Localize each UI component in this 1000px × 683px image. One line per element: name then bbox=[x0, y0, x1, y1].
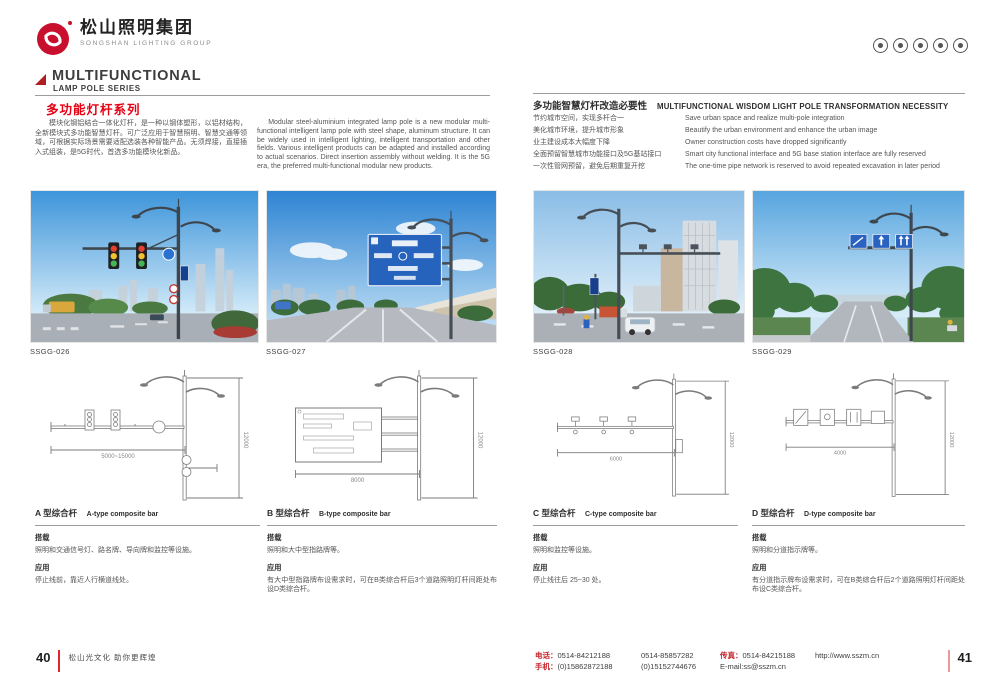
product-title: B 型综合杆 B-type composite bar bbox=[267, 503, 497, 521]
dimension-height-label: 12000 bbox=[477, 432, 483, 449]
application-label: 应用 bbox=[752, 563, 965, 573]
page-number-right: 41 bbox=[958, 650, 972, 665]
phone-number-2: 0514-85857282 bbox=[641, 650, 720, 661]
footer-contact: 电话：0514-84212188 0514-85857282 传真：0514-8… bbox=[535, 650, 879, 672]
series-subtitle-en: LAMP POLE SERIES bbox=[53, 84, 141, 93]
highway-direction-sign bbox=[368, 234, 441, 285]
fax-label: 传真： bbox=[720, 651, 743, 660]
series-title-cn: 多功能灯杆系列 bbox=[46, 99, 141, 118]
diagram-b-type: 8000 12000 bbox=[267, 362, 497, 502]
necessity-title-cn: 多功能智慧灯杆改造必要性 bbox=[533, 98, 647, 112]
divider bbox=[752, 525, 965, 526]
dimension-width-label: 8000 bbox=[351, 478, 365, 484]
phone-label: 电话： bbox=[535, 651, 558, 660]
application-text: 停止线往后 25~30 处。 bbox=[533, 576, 738, 586]
application-text: 有分道指示牌布设需求时，可在B类综合杆后2个道路照明灯杆间距处布设C类综合杆。 bbox=[752, 576, 965, 595]
product-title-en: B-type composite bar bbox=[319, 511, 391, 518]
carry-label: 搭载 bbox=[752, 533, 965, 543]
cert-badge-icon bbox=[893, 38, 908, 53]
necessity-item-en: Save urban space and realize multi-pole … bbox=[685, 115, 965, 124]
carry-text: 照明和交通信号灯、路名牌、导向牌和监控等设施。 bbox=[35, 546, 260, 556]
product-title-cn: D 型综合杆 bbox=[752, 508, 795, 518]
series-title-en: MULTIFUNCTIONAL bbox=[52, 68, 201, 84]
phone-number-1: 0514-84212188 bbox=[558, 651, 611, 660]
lane-signs bbox=[850, 234, 912, 248]
certification-icons bbox=[873, 38, 968, 53]
necessity-item-cn: 业主建设成本大幅度下降 bbox=[533, 139, 685, 148]
product-title: D 型综合杆 D-type composite bar bbox=[752, 503, 965, 521]
product-title-en: D-type composite bar bbox=[804, 511, 876, 518]
traffic-signal-head bbox=[136, 242, 147, 269]
mobile-label: 手机： bbox=[535, 662, 558, 671]
product-title-en: C-type composite bar bbox=[585, 511, 657, 518]
divider bbox=[533, 525, 738, 526]
catalog-spread: 松山照明集团 SONGSHAN LIGHTING GROUP MULTIFUNC… bbox=[0, 0, 1000, 683]
product-photo-ssgg-029 bbox=[752, 190, 965, 343]
cert-badge-icon bbox=[873, 38, 888, 53]
carry-label: 搭载 bbox=[267, 533, 497, 543]
necessity-item-en: The one-time pipe network is reserved to… bbox=[685, 163, 965, 172]
brand-logo: 松山照明集团 SONGSHAN LIGHTING GROUP bbox=[34, 18, 212, 58]
email-address: E-mail:ss@sszm.cn bbox=[720, 661, 815, 672]
brand-name-en: SONGSHAN LIGHTING GROUP bbox=[80, 40, 212, 47]
fax-number: 0514-84215188 bbox=[743, 651, 796, 660]
product-title-en: A-type composite bar bbox=[87, 511, 159, 518]
cert-badge-icon bbox=[913, 38, 928, 53]
header-divider bbox=[35, 95, 490, 96]
product-photo-ssgg-027 bbox=[266, 190, 497, 343]
product-title-cn: B 型综合杆 bbox=[267, 508, 310, 518]
product-section-c: C 型综合杆 C-type composite bar 搭载 照明和监控等设施。… bbox=[533, 503, 738, 593]
carry-label: 搭载 bbox=[533, 533, 738, 543]
product-photo-ssgg-028 bbox=[533, 190, 745, 343]
carry-text: 照明和大中型指路牌等。 bbox=[267, 546, 497, 556]
necessity-item-cn: 美化城市环境，提升城市形象 bbox=[533, 127, 685, 136]
necessity-item-cn: 一次性管网预留，避免后期重复开挖 bbox=[533, 163, 685, 172]
contact-row-mobile: 手机：(0)15862872188 (0)15152744676 E-mail:… bbox=[535, 661, 879, 672]
necessity-item-en: Smart city functional interface and 5G b… bbox=[685, 151, 965, 160]
application-label: 应用 bbox=[533, 563, 738, 573]
product-title: A 型综合杆 A-type composite bar bbox=[35, 503, 260, 521]
cert-badge-icon bbox=[953, 38, 968, 53]
product-section-a: A 型综合杆 A-type composite bar 搭载 照明和交通信号灯、… bbox=[35, 503, 260, 593]
divider bbox=[35, 525, 260, 526]
traffic-signal-head bbox=[108, 242, 119, 269]
application-text: 有大中型指路牌布设需求时，可在B类综合杆后3个道路照明灯杆间距处布设D类综合杆。 bbox=[267, 576, 497, 595]
diagram-c-type: 6000 12000 bbox=[533, 362, 745, 502]
carry-label: 搭载 bbox=[35, 533, 260, 543]
necessity-item-en: Owner construction costs have dropped si… bbox=[685, 139, 965, 148]
website-url: http://www.sszm.cn bbox=[815, 650, 879, 661]
header-divider bbox=[533, 93, 965, 94]
red-triangle-icon bbox=[35, 74, 46, 85]
product-title-cn: A 型综合杆 bbox=[35, 508, 77, 518]
divider bbox=[267, 525, 497, 526]
diagram-d-type: 4000 12000 bbox=[752, 362, 965, 502]
contact-row-phone: 电话：0514-84212188 0514-85857282 传真：0514-8… bbox=[535, 650, 879, 661]
diagram-a-type: 5000~15000 12000 bbox=[35, 362, 260, 502]
application-label: 应用 bbox=[267, 563, 497, 573]
product-section-d: D 型综合杆 D-type composite bar 搭载 照明和分道指示牌等… bbox=[752, 503, 965, 603]
intro-paragraph-en: Modular steel-aluminium integrated lamp … bbox=[257, 119, 490, 172]
necessity-item-cn: 节约城市空间，实现多杆合一 bbox=[533, 115, 685, 124]
necessity-title: 多功能智慧灯杆改造必要性 MULTIFUNCTIONAL WISDOM LIGH… bbox=[533, 98, 965, 112]
necessity-item-cn: 全面预留智慧城市功能接口及5G基站接口 bbox=[533, 151, 685, 160]
necessity-list: 节约城市空间，实现多杆合一 Save urban space and reali… bbox=[533, 115, 965, 172]
photo-code: SSGG-027 bbox=[266, 347, 306, 356]
footer-divider bbox=[58, 650, 60, 672]
photo-code: SSGG-028 bbox=[533, 347, 573, 356]
footer-right: 41 bbox=[948, 650, 972, 672]
product-section-b: B 型综合杆 B-type composite bar 搭载 照明和大中型指路牌… bbox=[267, 503, 497, 603]
carry-text: 照明和监控等设施。 bbox=[533, 546, 738, 556]
dimension-height-label: 12000 bbox=[242, 432, 248, 449]
page-number-left: 40 bbox=[36, 650, 50, 665]
footer-divider bbox=[948, 650, 950, 672]
cert-badge-icon bbox=[933, 38, 948, 53]
footer-slogan: 松山光文化 助你更辉煌 bbox=[68, 652, 156, 663]
necessity-item-en: Beautify the urban environment and enhan… bbox=[685, 127, 965, 136]
photo-code: SSGG-026 bbox=[30, 347, 70, 356]
dimension-width-label: 6000 bbox=[610, 456, 623, 462]
intro-paragraph-cn: 模块化钢铝结合一体化灯杆，是一种以钢体塑形，以铝材结构，全新模块式多功能智慧灯杆… bbox=[35, 119, 247, 157]
footer-left: 40 松山光文化 助你更辉煌 bbox=[36, 650, 157, 672]
mobile-number-2: (0)15152744676 bbox=[641, 661, 720, 672]
dimension-width-label: 4000 bbox=[834, 451, 847, 457]
dimension-width-label: 5000~15000 bbox=[101, 454, 135, 460]
dimension-height-label: 12000 bbox=[728, 432, 734, 448]
product-photo-ssgg-026 bbox=[30, 190, 259, 343]
necessity-title-en: MULTIFUNCTIONAL WISDOM LIGHT POLE TRANSF… bbox=[657, 102, 948, 111]
dimension-height-label: 12000 bbox=[948, 432, 954, 448]
photo-code: SSGG-029 bbox=[752, 347, 792, 356]
songshan-swirl-icon bbox=[34, 18, 74, 58]
brand-name-cn: 松山照明集团 bbox=[80, 18, 212, 38]
application-label: 应用 bbox=[35, 563, 260, 573]
mobile-number-1: (0)15862872188 bbox=[558, 662, 613, 671]
product-title-cn: C 型综合杆 bbox=[533, 508, 576, 518]
application-text: 停止线前，靠近人行横道线处。 bbox=[35, 576, 260, 586]
carry-text: 照明和分道指示牌等。 bbox=[752, 546, 965, 556]
product-title: C 型综合杆 C-type composite bar bbox=[533, 503, 738, 521]
